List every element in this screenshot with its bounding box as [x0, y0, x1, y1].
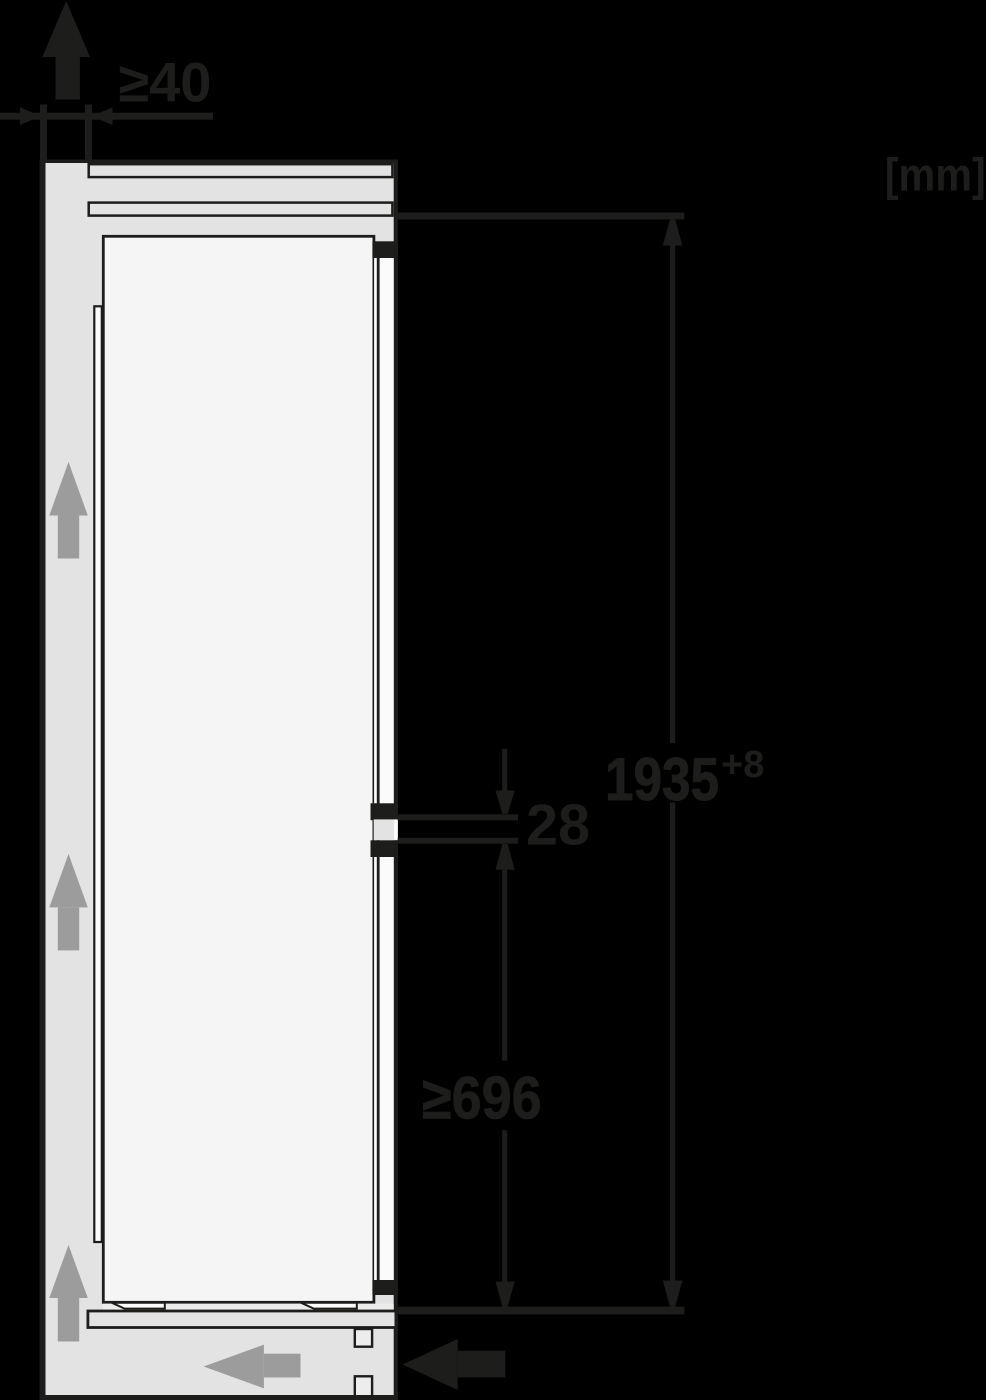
svg-text:1935: 1935 — [605, 745, 719, 813]
svg-text:[mm]: [mm] — [885, 149, 986, 201]
svg-text:≥40: ≥40 — [118, 51, 211, 114]
svg-text:≥696: ≥696 — [422, 1065, 542, 1132]
svg-text:+8: +8 — [721, 744, 764, 786]
svg-text:28: 28 — [526, 794, 590, 858]
